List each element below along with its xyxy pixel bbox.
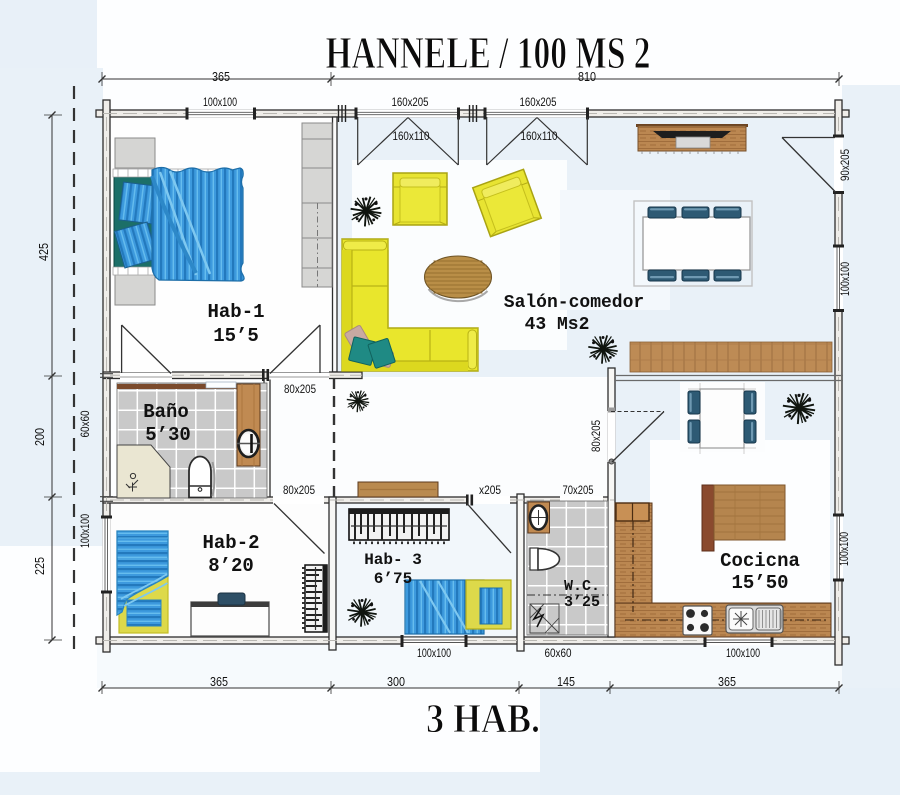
svg-text:425: 425 [37,243,51,261]
svg-text:225: 225 [33,557,47,575]
svg-text:5’30: 5’30 [145,424,191,446]
svg-text:Cocicna: Cocicna [720,550,800,572]
svg-text:160x110: 160x110 [521,131,558,143]
svg-text:x205: x205 [479,485,501,497]
svg-text:Hab- 3: Hab- 3 [364,551,422,569]
svg-text:365: 365 [212,70,230,84]
svg-text:100x100: 100x100 [417,648,451,660]
svg-text:15’50: 15’50 [731,572,788,594]
svg-text:100x100: 100x100 [203,97,237,109]
svg-text:60x60: 60x60 [545,648,572,660]
svg-text:6’75: 6’75 [374,570,412,588]
svg-text:160x110: 160x110 [393,131,430,143]
svg-text:80x205: 80x205 [283,485,315,497]
svg-text:Baño: Baño [143,401,189,423]
svg-text:200: 200 [33,428,47,446]
svg-text:100x100: 100x100 [839,532,851,566]
svg-text:70x205: 70x205 [563,485,594,497]
svg-text:3’25: 3’25 [564,594,600,611]
svg-text:Hab-2: Hab-2 [202,532,259,554]
svg-text:W.C.: W.C. [564,578,600,595]
svg-text:160x205: 160x205 [392,97,429,109]
svg-text:810: 810 [578,70,596,84]
svg-text:100x100: 100x100 [726,648,760,660]
svg-text:160x205: 160x205 [520,97,557,109]
svg-text:100x100: 100x100 [840,262,852,296]
svg-text:145: 145 [557,675,575,689]
svg-text:365: 365 [210,675,228,689]
svg-text:365: 365 [718,675,736,689]
svg-text:HANNELE / 100 MS 2: HANNELE / 100 MS 2 [326,27,651,78]
svg-text:8’20: 8’20 [208,555,254,577]
svg-text:3 HAB.: 3 HAB. [426,695,540,741]
svg-text:Salón-comedor: Salón-comedor [504,293,644,313]
svg-text:100x100: 100x100 [80,514,92,548]
svg-text:15’5: 15’5 [213,325,259,347]
svg-text:60x60: 60x60 [80,411,92,438]
svg-text:80x205: 80x205 [284,384,316,396]
svg-text:90x205: 90x205 [840,149,852,181]
svg-text:43 Ms2: 43 Ms2 [525,315,590,335]
svg-text:80x205: 80x205 [591,420,603,452]
svg-text:Hab-1: Hab-1 [207,301,264,323]
svg-text:300: 300 [387,675,405,689]
